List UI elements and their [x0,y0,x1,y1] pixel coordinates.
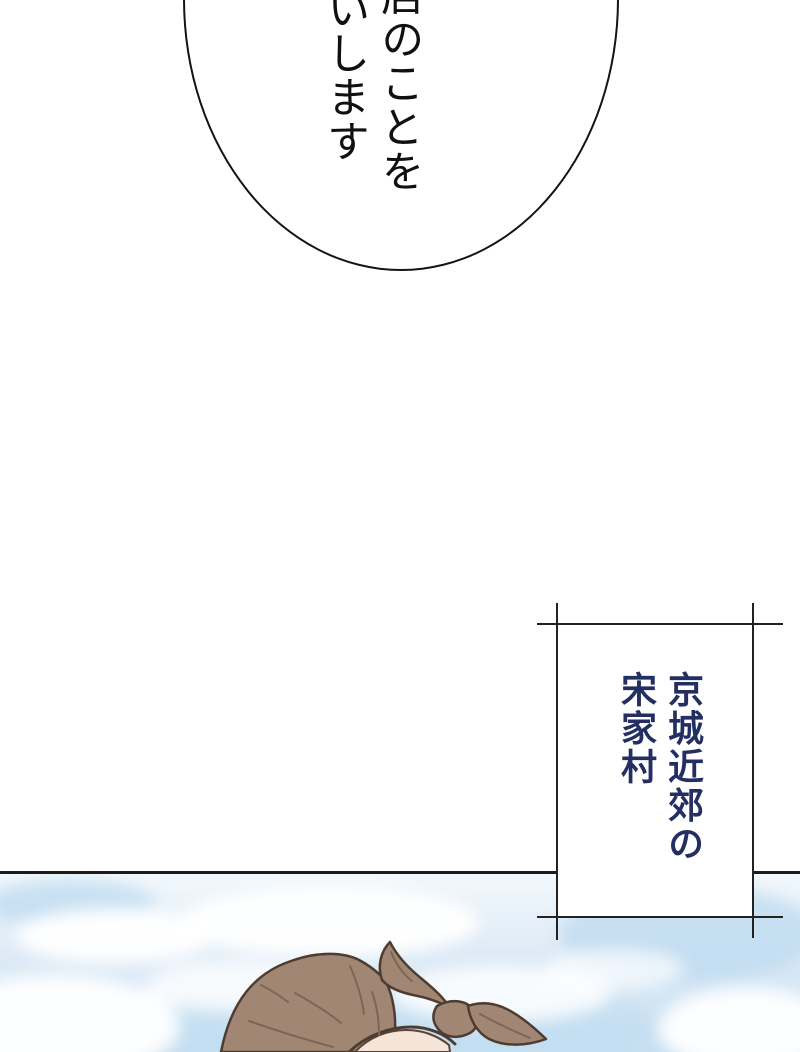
manga-page: 店のことを いします [0,0,800,1052]
caption-frame-top-line [537,623,783,625]
caption-text-left-column: 宋家村 [616,671,656,787]
cloud [545,949,685,989]
caption-frame-right-line [752,603,754,938]
caption-text-right-column: 京城近郊の [663,671,703,864]
caption-frame-bottom-line [537,916,783,918]
speech-bubble-text-right-column: 店のことを [372,0,424,193]
caption-frame-left-line [556,603,558,940]
speech-bubble-text-left-column: いします [318,0,370,163]
cloud [180,886,480,958]
